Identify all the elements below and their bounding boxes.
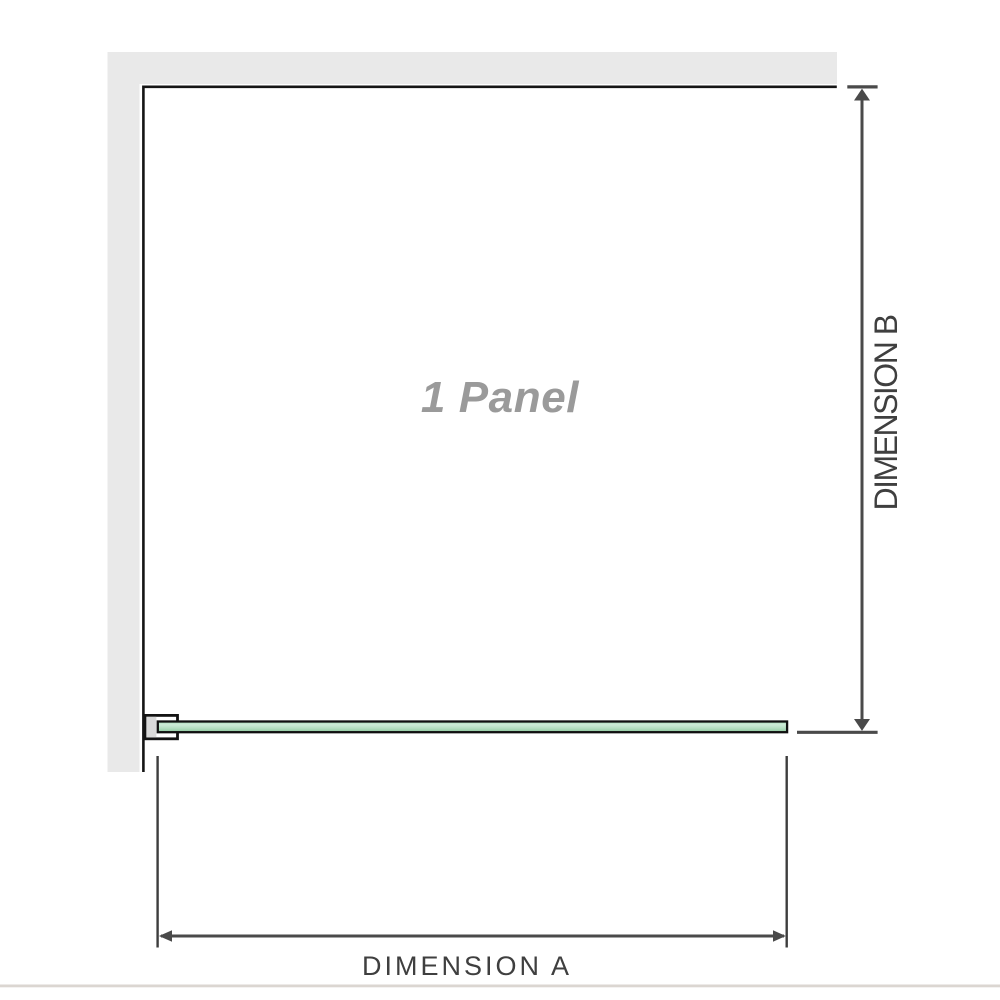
svg-text:1 Panel: 1 Panel [421,373,579,422]
svg-text:DIMENSION B: DIMENSION B [868,315,904,510]
svg-text:DIMENSION A: DIMENSION A [362,951,572,981]
